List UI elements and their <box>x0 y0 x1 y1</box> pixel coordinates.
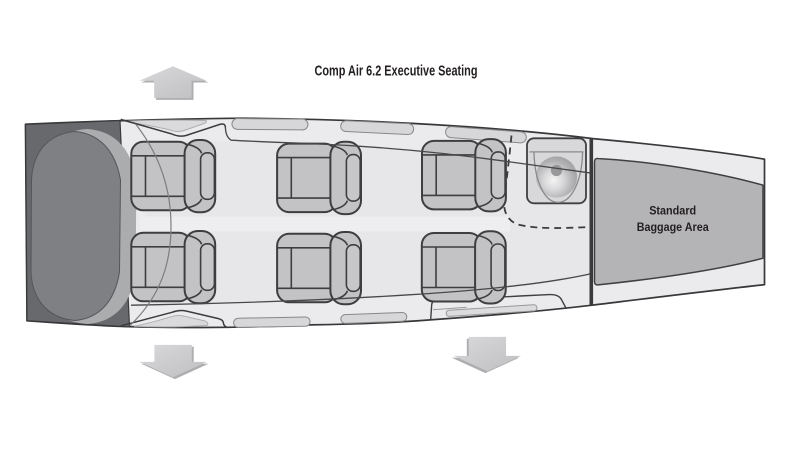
svg-text:Comp Air 6.2 Executive Seating: Comp Air 6.2 Executive Seating <box>315 62 478 79</box>
svg-text:Standard: Standard <box>649 204 696 218</box>
svg-text:Baggage Area: Baggage Area <box>637 220 709 234</box>
